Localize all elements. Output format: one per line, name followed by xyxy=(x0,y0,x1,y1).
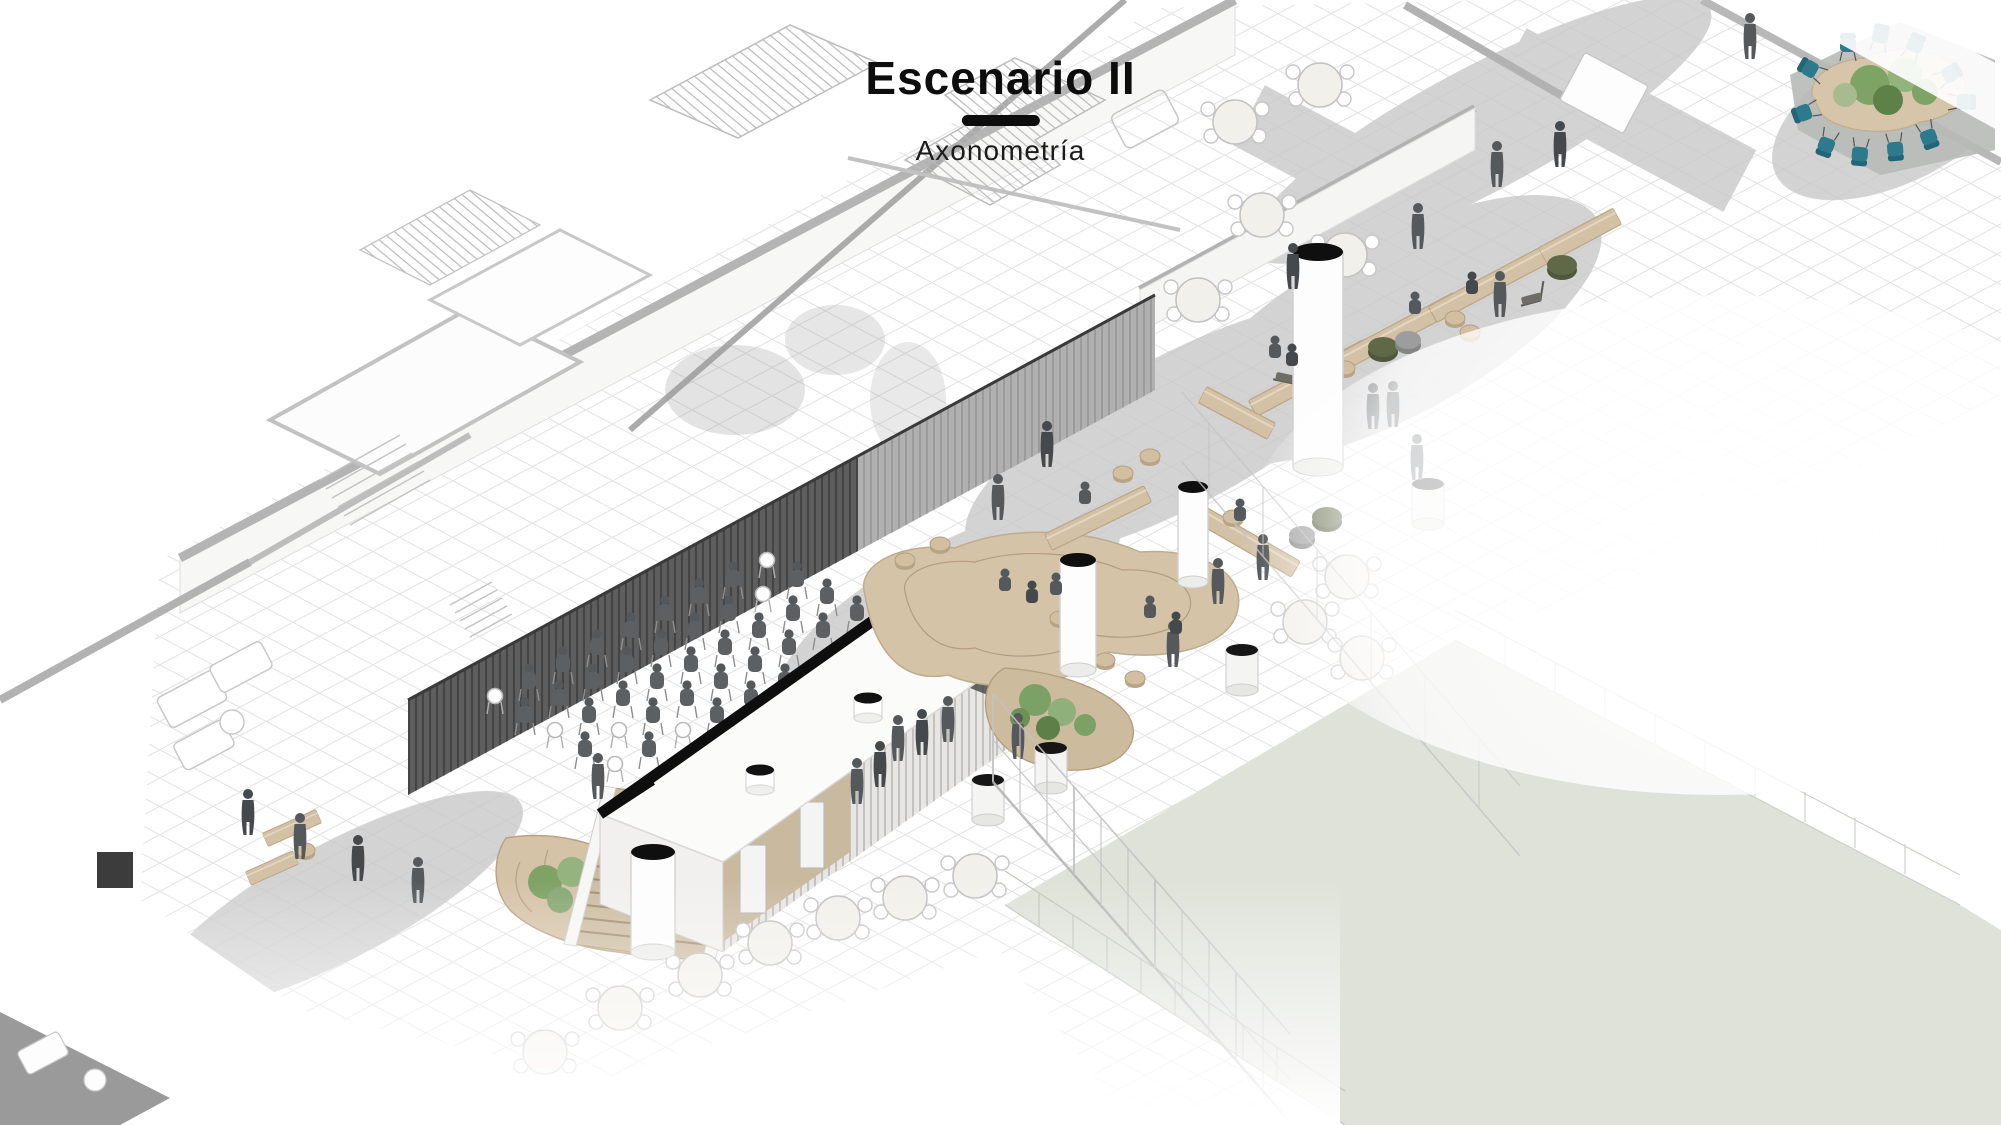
seated-person xyxy=(1269,336,1281,359)
seated-person xyxy=(1079,482,1091,505)
pavilion-door xyxy=(800,802,824,868)
olive-pouf xyxy=(1368,337,1398,362)
gray-pouf xyxy=(1395,331,1421,354)
stool xyxy=(1113,466,1133,483)
seated-person xyxy=(1286,344,1298,367)
seated-person xyxy=(1409,292,1421,315)
seated-person xyxy=(1144,596,1156,619)
olive-pouf xyxy=(1547,255,1577,280)
coffee-table-outline xyxy=(220,710,244,734)
seated-person xyxy=(1026,581,1038,604)
column xyxy=(1060,553,1096,677)
slide: Escenario II Axonometría xyxy=(0,0,2001,1125)
wall-screen xyxy=(97,852,133,888)
bollard xyxy=(1035,742,1067,794)
axonometric-drawing xyxy=(0,0,2001,1125)
stool xyxy=(1125,671,1145,688)
seated-person xyxy=(1466,272,1478,295)
stool xyxy=(1095,653,1115,670)
table-outline xyxy=(84,1069,106,1091)
title-divider xyxy=(961,115,1039,126)
hatched-roof xyxy=(650,25,878,138)
roof-cylinder xyxy=(746,765,774,796)
bollard xyxy=(972,774,1004,826)
page-title: Escenario II xyxy=(865,54,1135,102)
roof-cylinder xyxy=(854,693,882,724)
seated-person xyxy=(1170,612,1182,635)
stool xyxy=(930,537,950,554)
stool xyxy=(1140,449,1160,466)
column xyxy=(1178,481,1208,588)
page-subtitle: Axonometría xyxy=(865,135,1135,167)
seated-person xyxy=(999,569,1011,592)
stool xyxy=(1445,311,1465,328)
bollard xyxy=(1226,644,1258,696)
fade-bottom xyxy=(140,870,1340,1125)
title-block: Escenario II Axonometría xyxy=(865,54,1135,167)
seated-person xyxy=(1050,573,1062,596)
stool xyxy=(895,553,915,570)
